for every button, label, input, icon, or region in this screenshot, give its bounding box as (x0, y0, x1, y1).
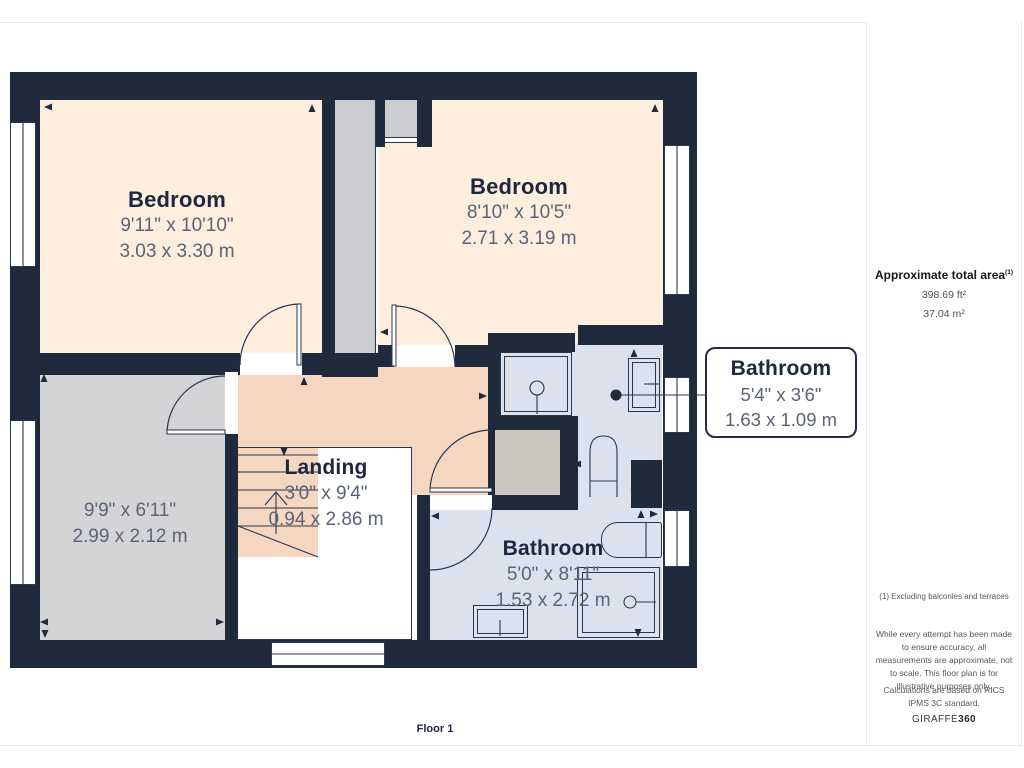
wall-shaft-cap (322, 353, 378, 377)
cupboard (495, 430, 560, 497)
wall-cupboard-left (488, 430, 495, 497)
room-dims-metric: 2.99 x 2.12 m (30, 524, 230, 550)
window-showerroom (664, 377, 690, 433)
sink-icon (628, 358, 660, 412)
gray-room-label: 9'9" x 6'11" 2.99 x 2.12 m (30, 498, 230, 550)
floorplan-page: Bedroom 9'11" x 10'10" 3.03 x 3.30 m Bed… (0, 0, 1024, 768)
sidebar-standard-note: Calculations are based on RICS IPMS 3C s… (873, 684, 1015, 710)
landing-floor (237, 367, 490, 447)
brand-logo: GIRAFFE360 (873, 714, 1015, 725)
wall-showerroom-jog (631, 460, 662, 508)
sidebar-footnote: (1) Excluding balconies and terraces (873, 592, 1015, 601)
room-dims-metric: 1.53 x 2.72 m (453, 588, 653, 614)
room-dims-imperial: 5'0" x 8'11" (453, 562, 653, 588)
recess-vent (385, 137, 417, 143)
room-dims-imperial: 5'4" x 3'6" (707, 382, 855, 407)
bedroom2-label: Bedroom 8'10" x 10'5" 2.71 x 3.19 m (419, 173, 619, 252)
room-name: Bedroom (419, 173, 619, 200)
room-dims-imperial: 3'0" x 9'4" (226, 481, 426, 507)
wall-recess-stub-right (417, 100, 432, 147)
room-dims-metric: 0.94 x 2.86 m (226, 507, 426, 533)
wall-top (10, 72, 697, 100)
brand-suffix: 360 (958, 714, 976, 725)
bedroom2-door-opening (394, 345, 455, 367)
room-dims-metric: 2.71 x 3.19 m (419, 226, 619, 252)
floor-label: Floor 1 (385, 723, 485, 735)
total-area-m: 37.04 m² (871, 308, 1017, 320)
window-bathroom (664, 510, 690, 567)
grayroom-door-opening (225, 372, 238, 434)
bathroom-door-opening (430, 495, 492, 510)
bedroom1-door-opening (240, 353, 302, 375)
room-name: Bedroom (77, 186, 277, 213)
room-name: Landing (226, 454, 426, 481)
info-sidebar: Approximate total area(1) 398.69 ft² 37.… (866, 22, 1022, 745)
room-name: Bathroom (453, 535, 653, 562)
wall-shaft-left (322, 100, 335, 377)
wall-recess-stub-left (375, 100, 385, 147)
shower-tray-inner (504, 356, 568, 412)
window-bedroom2 (664, 145, 690, 295)
room-dims-metric: 1.63 x 1.09 m (707, 407, 855, 432)
window-bedroom1 (10, 122, 36, 267)
total-area-label: Approximate total area (875, 268, 1005, 282)
chimney-recess (385, 100, 417, 138)
bottom-divider (0, 745, 1022, 746)
total-area-ft: 398.69 ft² (871, 289, 1017, 301)
room-dims-metric: 3.03 x 3.30 m (77, 239, 277, 265)
chimney-shaft (335, 100, 375, 357)
brand-prefix: GIRAFFE (912, 714, 958, 725)
total-area-title: Approximate total area(1) (871, 268, 1017, 282)
wall-alcove-top (488, 333, 575, 352)
room-name: Bathroom (707, 355, 855, 382)
bathroom-label: Bathroom 5'0" x 8'11" 1.53 x 2.72 m (453, 535, 653, 614)
room-dims-imperial: 8'10" x 10'5" (419, 200, 619, 226)
window-stairwell (271, 642, 385, 666)
bathroom-callout: Bathroom 5'4" x 3'6" 1.63 x 1.09 m (705, 347, 857, 438)
room-dims-imperial: 9'11" x 10'10" (77, 213, 277, 239)
landing-label: Landing 3'0" x 9'4" 0.94 x 2.86 m (226, 454, 426, 533)
room-dims-imperial: 9'9" x 6'11" (30, 498, 230, 524)
total-area-block: Approximate total area(1) 398.69 ft² 37.… (871, 268, 1017, 320)
wall-showerroom-top (578, 325, 663, 345)
bedroom1-label: Bedroom 9'11" x 10'10" 3.03 x 3.30 m (77, 186, 277, 265)
footnote-ref: (1) (1005, 269, 1013, 276)
shower-tray-icon (500, 352, 572, 416)
sink-inner (632, 362, 656, 408)
